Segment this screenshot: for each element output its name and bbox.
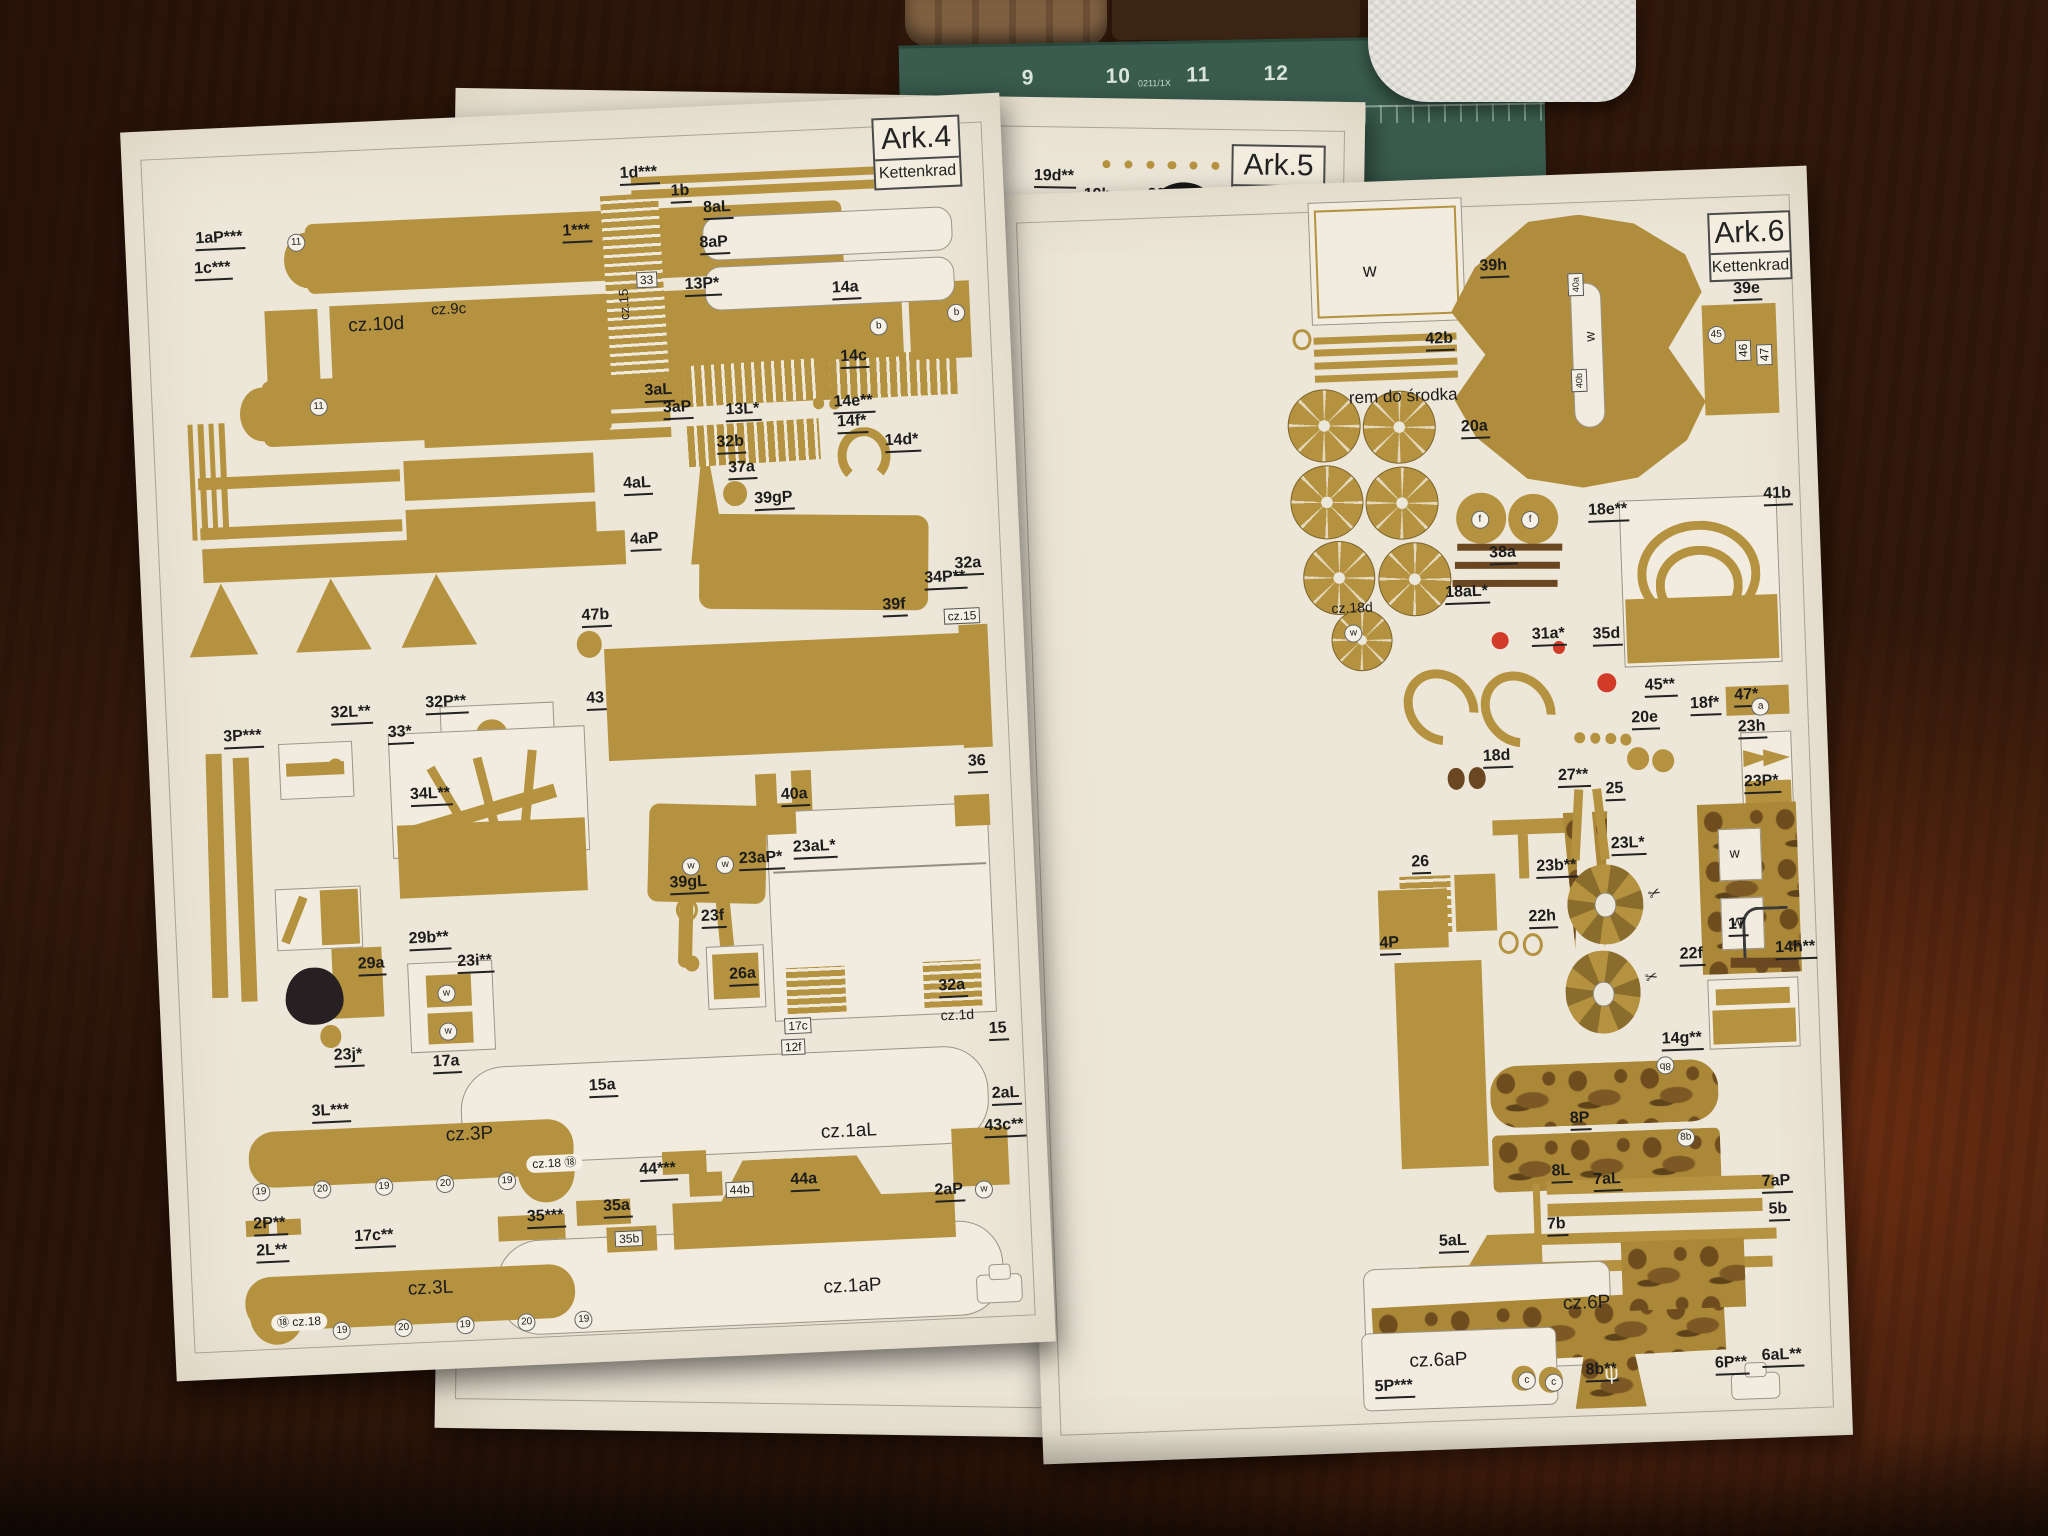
part-label: 19: [252, 1183, 271, 1202]
part-label: 15: [988, 1019, 1009, 1041]
part-label: 33: [636, 271, 658, 288]
cardboard-tube: [905, 0, 1107, 46]
part-label: 22h: [1528, 907, 1558, 929]
part-shape: [1190, 161, 1198, 169]
part-label: ⑱ cz.18: [271, 1312, 328, 1332]
part-shape: [320, 889, 360, 946]
part-label: w: [1729, 844, 1740, 860]
part-label: 26: [1411, 853, 1432, 875]
part-label: cz.1d: [940, 1006, 974, 1024]
part-label: 5P***: [1374, 1377, 1415, 1399]
sheet-ark4: Ark.4Kettenkrad1aP***1c***1***1d***1b8aL…: [120, 93, 1056, 1382]
part-shape: [396, 817, 587, 898]
part-label: 23j*: [333, 1045, 364, 1067]
part-label: 13P*: [684, 274, 722, 297]
part-label: 29b**: [408, 928, 451, 951]
part-shape: [206, 754, 229, 998]
sheet-title: Ark.5: [1233, 146, 1324, 188]
part-label: 12f: [781, 1039, 806, 1056]
part-label: 5b: [1768, 1199, 1789, 1221]
part-shape: [1377, 541, 1453, 617]
part-label: 32a: [954, 554, 984, 576]
white-cloth: [1368, 0, 1636, 102]
part-shape: [1395, 960, 1489, 1169]
part-label: 42b: [1425, 330, 1455, 352]
part-label: 19: [375, 1178, 394, 1197]
part-label: 3aP: [663, 398, 694, 420]
sheet-title-box: Ark.6Kettenkrad: [1707, 211, 1793, 283]
sheet-title: Ark.4: [873, 117, 959, 162]
part-label: 29a: [357, 954, 387, 976]
part-shape: [1621, 1238, 1747, 1311]
part-label: cz.10d: [348, 312, 405, 337]
part-label: 1d***: [619, 163, 659, 186]
part-label: cz.15: [943, 607, 980, 625]
part-label: 6P**: [1715, 1353, 1750, 1375]
part-shape: [1448, 768, 1466, 790]
part-shape: [1597, 673, 1616, 693]
part-label: 40a: [1567, 273, 1584, 297]
part-label: 8aL: [703, 197, 734, 219]
part-shape: [1590, 732, 1601, 744]
part-shape: [232, 758, 257, 1002]
part-label: cz.6P: [1562, 1291, 1610, 1315]
part-shape: [1627, 747, 1650, 771]
mat-ruler-number: 10: [1105, 65, 1131, 89]
part-label: 38a: [1489, 543, 1518, 565]
part-shape: [1605, 733, 1616, 745]
part-label: 23L*: [1611, 834, 1648, 856]
part-label: 14f*: [837, 411, 869, 433]
part-shape: [689, 1171, 723, 1196]
part-label: cz.1aP: [823, 1274, 882, 1299]
part-label: 17c**: [354, 1226, 396, 1249]
part-label: 14d*: [884, 430, 921, 453]
part-shape: [1518, 834, 1529, 879]
part-shape: [1314, 358, 1457, 370]
part-label: 17a: [432, 1052, 462, 1074]
part-label: cz.18 ⑱: [526, 1154, 583, 1174]
part-shape: [1625, 594, 1779, 664]
part-shape: [1289, 464, 1365, 540]
part-label: 35***: [527, 1206, 566, 1229]
part-label: 44***: [639, 1160, 678, 1183]
part-label: 44b: [725, 1181, 754, 1198]
part-label: 1c***: [194, 259, 233, 282]
sheet-title: Ark.6: [1709, 213, 1790, 256]
part-label: 39f: [882, 595, 908, 617]
part-label: cz.15: [616, 289, 632, 321]
part-shape: [958, 624, 993, 748]
part-label: 39e: [1733, 279, 1762, 301]
part-label: 8P: [1570, 1109, 1592, 1131]
part-label: 37a: [728, 458, 758, 480]
part-label: 31a*: [1532, 624, 1568, 646]
part-label: 43: [586, 689, 607, 711]
part-shape: [186, 582, 258, 658]
tank-icon: [988, 1263, 1011, 1280]
sheet-title-box: Ark.4Kettenkrad: [871, 115, 963, 190]
part-shape: [398, 572, 477, 648]
part-label: 23i**: [457, 952, 495, 975]
part-label: 4aL: [623, 474, 654, 496]
part-shape: [723, 481, 748, 507]
part-label: 47: [1756, 344, 1773, 366]
part-label: cz.3P: [445, 1123, 493, 1147]
part-shape: [1492, 817, 1567, 835]
part-shape: [675, 897, 698, 922]
part-label: 36: [967, 751, 988, 773]
part-shape: [1715, 987, 1790, 1005]
part-label: 19: [498, 1172, 517, 1191]
part-label: 18aL*: [1445, 583, 1490, 606]
part-shape: [760, 803, 797, 836]
part-shape: [1570, 282, 1606, 428]
mat-ruler-number: 11: [1186, 63, 1211, 87]
part-shape: [1574, 732, 1585, 744]
part-label: 14e**: [833, 391, 875, 414]
part-shape: [576, 630, 603, 659]
part-shape: [1570, 789, 1582, 860]
part-shape: [404, 453, 595, 502]
part-label: w: [1363, 260, 1378, 282]
part-shape: [1713, 1007, 1797, 1044]
part-shape: [293, 577, 372, 653]
part-label: 35a: [603, 1197, 633, 1219]
part-label: 4aP: [630, 530, 661, 552]
part-label: 47b: [581, 606, 612, 628]
part-label: 7aL: [1593, 1170, 1623, 1192]
photo-scene: 91011120211/1X Ark.4Kettenkrad1aP***1c**…: [0, 0, 2048, 1536]
part-label: 23aP*: [738, 848, 784, 871]
part-shape: [1146, 160, 1154, 168]
mat-ruler-number: 9: [1022, 66, 1035, 90]
part-label: 11: [309, 397, 328, 416]
part-shape: [600, 193, 670, 381]
part-label: 5aL: [1439, 1232, 1469, 1254]
part-shape: [1468, 767, 1486, 789]
part-label: 27**: [1558, 766, 1591, 788]
part-shape: [1364, 465, 1440, 541]
part-label: 40a: [780, 785, 810, 807]
part-label: 20: [394, 1318, 413, 1337]
part-label: 32a: [938, 976, 968, 998]
part-label: 35d: [1592, 625, 1622, 647]
part-shape: [1621, 734, 1632, 746]
part-label: 20e: [1631, 709, 1660, 731]
part-shape: [187, 425, 198, 541]
part-label: 41b: [1763, 484, 1793, 506]
part-label: 7aP: [1762, 1171, 1793, 1193]
part-shape: [200, 519, 403, 541]
part-label: 8b: [1676, 1128, 1695, 1147]
part-label: 6aL**: [1761, 1345, 1804, 1368]
part-shape: [1454, 873, 1497, 932]
part-label: w: [975, 1180, 994, 1199]
part-label: 45**: [1644, 676, 1677, 698]
part-label: 26a: [729, 965, 759, 987]
part-label: 2aP: [934, 1180, 965, 1202]
part-label: c: [1544, 1373, 1563, 1392]
part-label: 19d**: [1034, 167, 1076, 189]
scissors-icon: ✂: [1645, 883, 1664, 905]
part-label: 14c: [840, 346, 870, 368]
part-shape: [1168, 161, 1176, 169]
part-label: 7b: [1547, 1215, 1568, 1237]
part-label: 33*: [387, 722, 414, 744]
sheet-subtitle: Kettenkrad: [875, 158, 961, 188]
part-label: 39h: [1479, 257, 1509, 279]
part-label: cz.6aP: [1409, 1348, 1468, 1372]
part-label: 1***: [562, 221, 593, 243]
part-label: 1b: [670, 182, 692, 204]
part-shape: [1491, 631, 1509, 649]
part-label: 20: [436, 1175, 455, 1194]
part-label: 1aP***: [195, 228, 245, 251]
part-shape: [1466, 656, 1571, 762]
part-label: 19: [456, 1315, 475, 1334]
part-label: cz.9c: [431, 300, 467, 319]
part-label: ψ: [1604, 1362, 1619, 1386]
part-shape: [604, 632, 978, 761]
part-shape: [320, 1025, 341, 1048]
part-label: 2aL: [991, 1084, 1022, 1106]
part-label: 32P**: [425, 692, 469, 715]
part-label: 13L*: [725, 400, 762, 423]
part-label: rem do środka: [1349, 384, 1458, 408]
part-shape: [954, 794, 991, 827]
part-label: 2L**: [256, 1241, 290, 1263]
part-shape: [1523, 933, 1544, 957]
part-shape: [197, 469, 400, 491]
part-label: 23f: [701, 907, 727, 929]
part-label: 8aP: [699, 233, 730, 255]
part-label: 32b: [716, 432, 747, 454]
part-shape: [1212, 161, 1220, 169]
part-label: 43c**: [984, 1115, 1026, 1138]
part-shape: [1124, 160, 1132, 168]
sheet-ark6: Ark.6Kettenkradw39h39e42brem do środka20…: [997, 166, 1853, 1465]
part-label: 8L: [1551, 1162, 1572, 1184]
part-label: 14a: [831, 278, 861, 300]
part-label: 8b: [1656, 1056, 1675, 1075]
part-label: w: [1732, 913, 1743, 929]
part-label: w: [1582, 331, 1598, 342]
part-label: 44a: [790, 1169, 820, 1191]
part-shape: [1102, 160, 1110, 168]
part-label: 17c: [784, 1017, 812, 1034]
mat-ruler-number: 12: [1263, 62, 1289, 86]
part-label: 4P: [1379, 934, 1401, 956]
part-shape: [813, 397, 824, 409]
part-label: 23P*: [1744, 771, 1781, 793]
part-label: 20a: [1461, 417, 1490, 439]
scissors-icon: ✂: [1643, 966, 1660, 987]
part-label: 23aL*: [793, 837, 839, 860]
part-shape: [1547, 1198, 1763, 1217]
part-label: 35b: [615, 1230, 644, 1247]
part-label: 18f*: [1690, 694, 1722, 716]
part-shape: [1389, 654, 1494, 760]
part-label: cz.18d: [1331, 598, 1373, 616]
part-label: cz.1aL: [820, 1119, 877, 1144]
part-shape: [786, 966, 846, 1015]
mat-small-text: 0211/1X: [1138, 78, 1171, 89]
part-label: 25: [1605, 780, 1626, 802]
part-label: 3L***: [311, 1101, 351, 1124]
part-shape: [684, 955, 700, 972]
part-label: 39gP: [754, 489, 795, 512]
part-label: 23b**: [1536, 856, 1579, 879]
sheet-subtitle: Kettenkrad: [1710, 252, 1790, 280]
part-label: 2P**: [253, 1214, 288, 1237]
part-label: 34L**: [410, 784, 453, 807]
part-label: 14g**: [1661, 1028, 1704, 1051]
part-label: 15a: [588, 1076, 618, 1098]
part-shape: [1489, 1058, 1720, 1129]
part-label: 39gL: [669, 873, 709, 896]
part-label: cz.3L: [407, 1276, 453, 1300]
part-shape: [1330, 608, 1394, 672]
part-label: 22f: [1679, 945, 1705, 967]
part-label: 3P***: [223, 727, 264, 750]
part-label: 18d: [1483, 747, 1513, 769]
dark-box: [1112, 0, 1360, 40]
part-label: 32L**: [330, 703, 373, 726]
part-label: 14h**: [1775, 938, 1818, 961]
part-label: 18e**: [1588, 500, 1630, 522]
part-shape: [1315, 370, 1458, 382]
part-shape: [1652, 749, 1675, 773]
part-label: f: [1471, 510, 1490, 529]
part-label: 23h: [1738, 717, 1768, 739]
part-shape: [1498, 931, 1519, 955]
part-shape: [1292, 329, 1311, 351]
part-label: 20: [313, 1180, 332, 1199]
part-label: 40b: [1571, 369, 1588, 393]
part-shape: [1314, 205, 1460, 318]
part-label: 46: [1735, 339, 1752, 361]
